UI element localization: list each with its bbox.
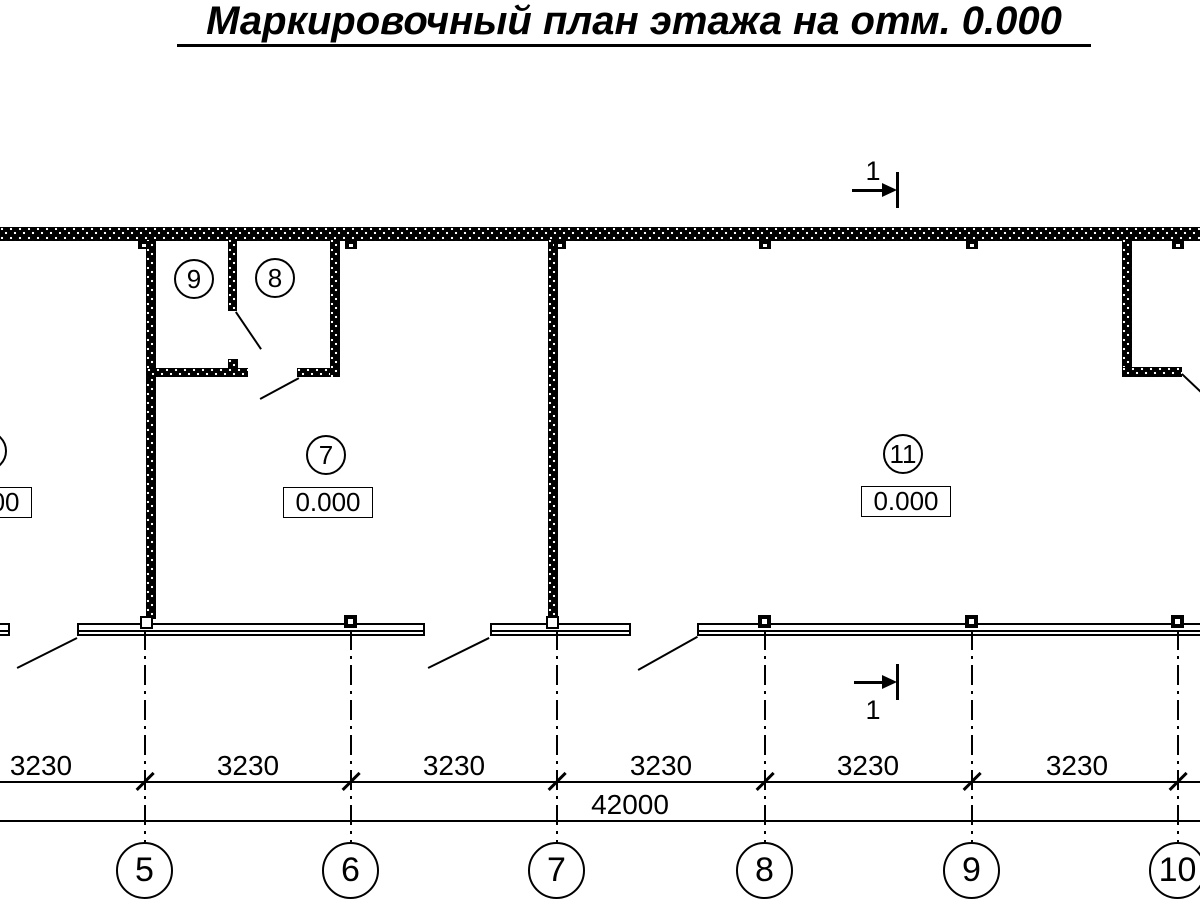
room-number: 8	[268, 263, 282, 293]
section-cut-bar	[896, 172, 899, 208]
window-strip-2	[490, 623, 631, 636]
grid-line-axis10	[1177, 630, 1179, 842]
wall-room9-bottom	[147, 368, 248, 377]
axis-marker-7: 7	[528, 842, 585, 899]
drawing-title: Маркировочный план этажа на отм. 0.000	[177, 0, 1091, 42]
wall-room9-door-jamb	[228, 359, 238, 368]
wall-axis-7	[548, 239, 558, 619]
elevation-left-partial: 0.000	[0, 487, 32, 518]
elevation-room7: 0.000	[283, 487, 373, 518]
window-strip-0	[0, 623, 10, 636]
axis-number: 9	[962, 851, 981, 889]
axis-marker-10: 10	[1149, 842, 1200, 899]
dim-text-3: 3230	[399, 752, 509, 780]
room-number: 11	[890, 439, 917, 469]
room-number: 7	[319, 440, 333, 470]
axis-marker-8: 8	[736, 842, 793, 899]
dim-text-4: 3230	[606, 752, 716, 780]
wall-base-axis5	[140, 616, 153, 629]
grid-line-axis8	[764, 630, 766, 842]
title-underline	[177, 44, 1091, 47]
section-arrow-line	[852, 189, 884, 192]
wall-tick-axis8	[759, 241, 771, 249]
door-leaf-room11	[1181, 373, 1200, 392]
wall-partition-9-8	[228, 239, 237, 311]
wall-tick-axis9	[966, 241, 978, 249]
wall-tick-axis10	[1172, 241, 1184, 249]
opening-diagonal-2	[428, 637, 490, 668]
axis-marker-5: 5	[116, 842, 173, 899]
dimension-line-segments	[0, 781, 1200, 783]
section-arrowhead-icon	[882, 675, 897, 689]
column-axis8	[758, 615, 771, 628]
grid-line-axis7	[556, 630, 558, 842]
window-strip-3	[697, 623, 1200, 636]
column-axis6	[344, 615, 357, 628]
room-marker-8: 8	[255, 258, 295, 298]
axis-number: 7	[547, 851, 566, 889]
wall-axis-5	[146, 239, 156, 619]
dim-text-5: 3230	[813, 752, 923, 780]
section-arrow-line	[854, 681, 884, 684]
window-strip-1	[77, 623, 425, 636]
wall-room8-right	[330, 239, 340, 377]
room-marker-9: 9	[174, 259, 214, 299]
wall-tick-axis5	[138, 241, 150, 249]
wall-base-axis7	[546, 616, 559, 629]
section-number-top: 1	[858, 158, 888, 185]
axis-marker-9: 9	[943, 842, 1000, 899]
dim-text-6: 3230	[1022, 752, 1132, 780]
column-axis10	[1171, 615, 1184, 628]
section-cut-bar	[896, 664, 899, 700]
section-arrowhead-icon	[882, 183, 897, 197]
elevation-room11: 0.000	[861, 486, 951, 517]
dimension-line-total	[0, 820, 1200, 822]
wall-right-vertical	[1122, 239, 1132, 377]
room-marker-left-partial	[0, 431, 7, 471]
dim-text-1: 3230	[0, 752, 96, 780]
opening-diagonal-1	[17, 637, 78, 668]
wall-tick-axis6	[345, 241, 357, 249]
floor-plan-drawing: Маркировочный план этажа на отм. 0.000 1	[0, 0, 1200, 900]
axis-marker-6: 6	[322, 842, 379, 899]
axis-number: 8	[755, 851, 774, 889]
room-marker-11: 11	[883, 434, 923, 474]
dim-text-total: 42000	[575, 791, 685, 819]
axis-number: 5	[135, 851, 154, 889]
door-leaf-room9	[235, 311, 261, 349]
wall-right-horizontal	[1122, 367, 1182, 377]
column-axis9	[965, 615, 978, 628]
dim-text-2: 3230	[193, 752, 303, 780]
wall-tick-axis7	[554, 241, 566, 249]
door-leaf-room8	[260, 377, 300, 399]
opening-diagonal-3	[638, 636, 698, 670]
grid-line-axis9	[971, 630, 973, 842]
wall-exterior-top	[0, 227, 1200, 241]
room-marker-7: 7	[306, 435, 346, 475]
room-number: 9	[187, 264, 201, 294]
grid-line-axis6	[350, 630, 352, 842]
axis-number: 10	[1159, 851, 1197, 889]
grid-line-axis5	[144, 630, 146, 842]
section-number-bottom: 1	[858, 697, 888, 724]
axis-number: 6	[341, 851, 360, 889]
